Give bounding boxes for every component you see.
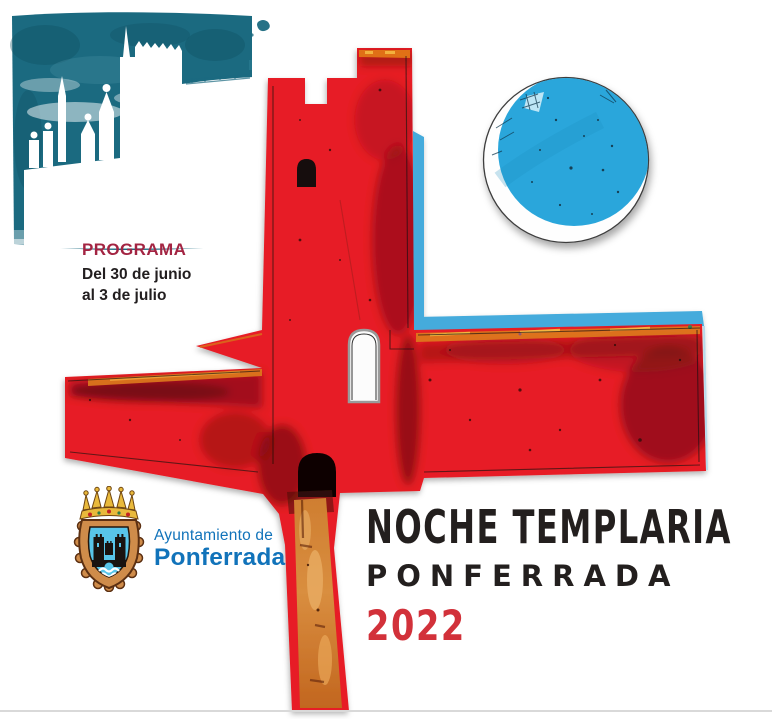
program-date-line2: al 3 de julio bbox=[82, 285, 191, 306]
program-block: PROGRAMA Del 30 de junio al 3 de julio bbox=[82, 240, 191, 306]
castle-silhouette-icon bbox=[10, 12, 270, 250]
municipality-logo: Ayuntamiento de Ponferrada bbox=[70, 486, 285, 592]
program-date-line1: Del 30 de junio bbox=[82, 264, 191, 285]
tower-window-dark bbox=[297, 159, 316, 187]
event-title-block: NOCHE TEMPLARIA PONFERRADA 2022 bbox=[366, 504, 772, 647]
poster-page: PROGRAMA Del 30 de junio al 3 de julio bbox=[0, 0, 772, 719]
event-year: 2022 bbox=[366, 605, 466, 647]
event-title: NOCHE TEMPLARIA bbox=[366, 504, 732, 550]
program-label: PROGRAMA bbox=[82, 240, 191, 260]
tower-window-light bbox=[349, 330, 379, 402]
ponferrada-crest-icon bbox=[70, 486, 148, 592]
moon-icon bbox=[484, 74, 651, 243]
event-subtitle: PONFERRADA bbox=[366, 562, 772, 591]
municipality-name-line1: Ayuntamiento de bbox=[154, 528, 285, 544]
municipality-name-line2: Ponferrada bbox=[154, 545, 285, 570]
page-bottom-rule bbox=[0, 710, 772, 712]
